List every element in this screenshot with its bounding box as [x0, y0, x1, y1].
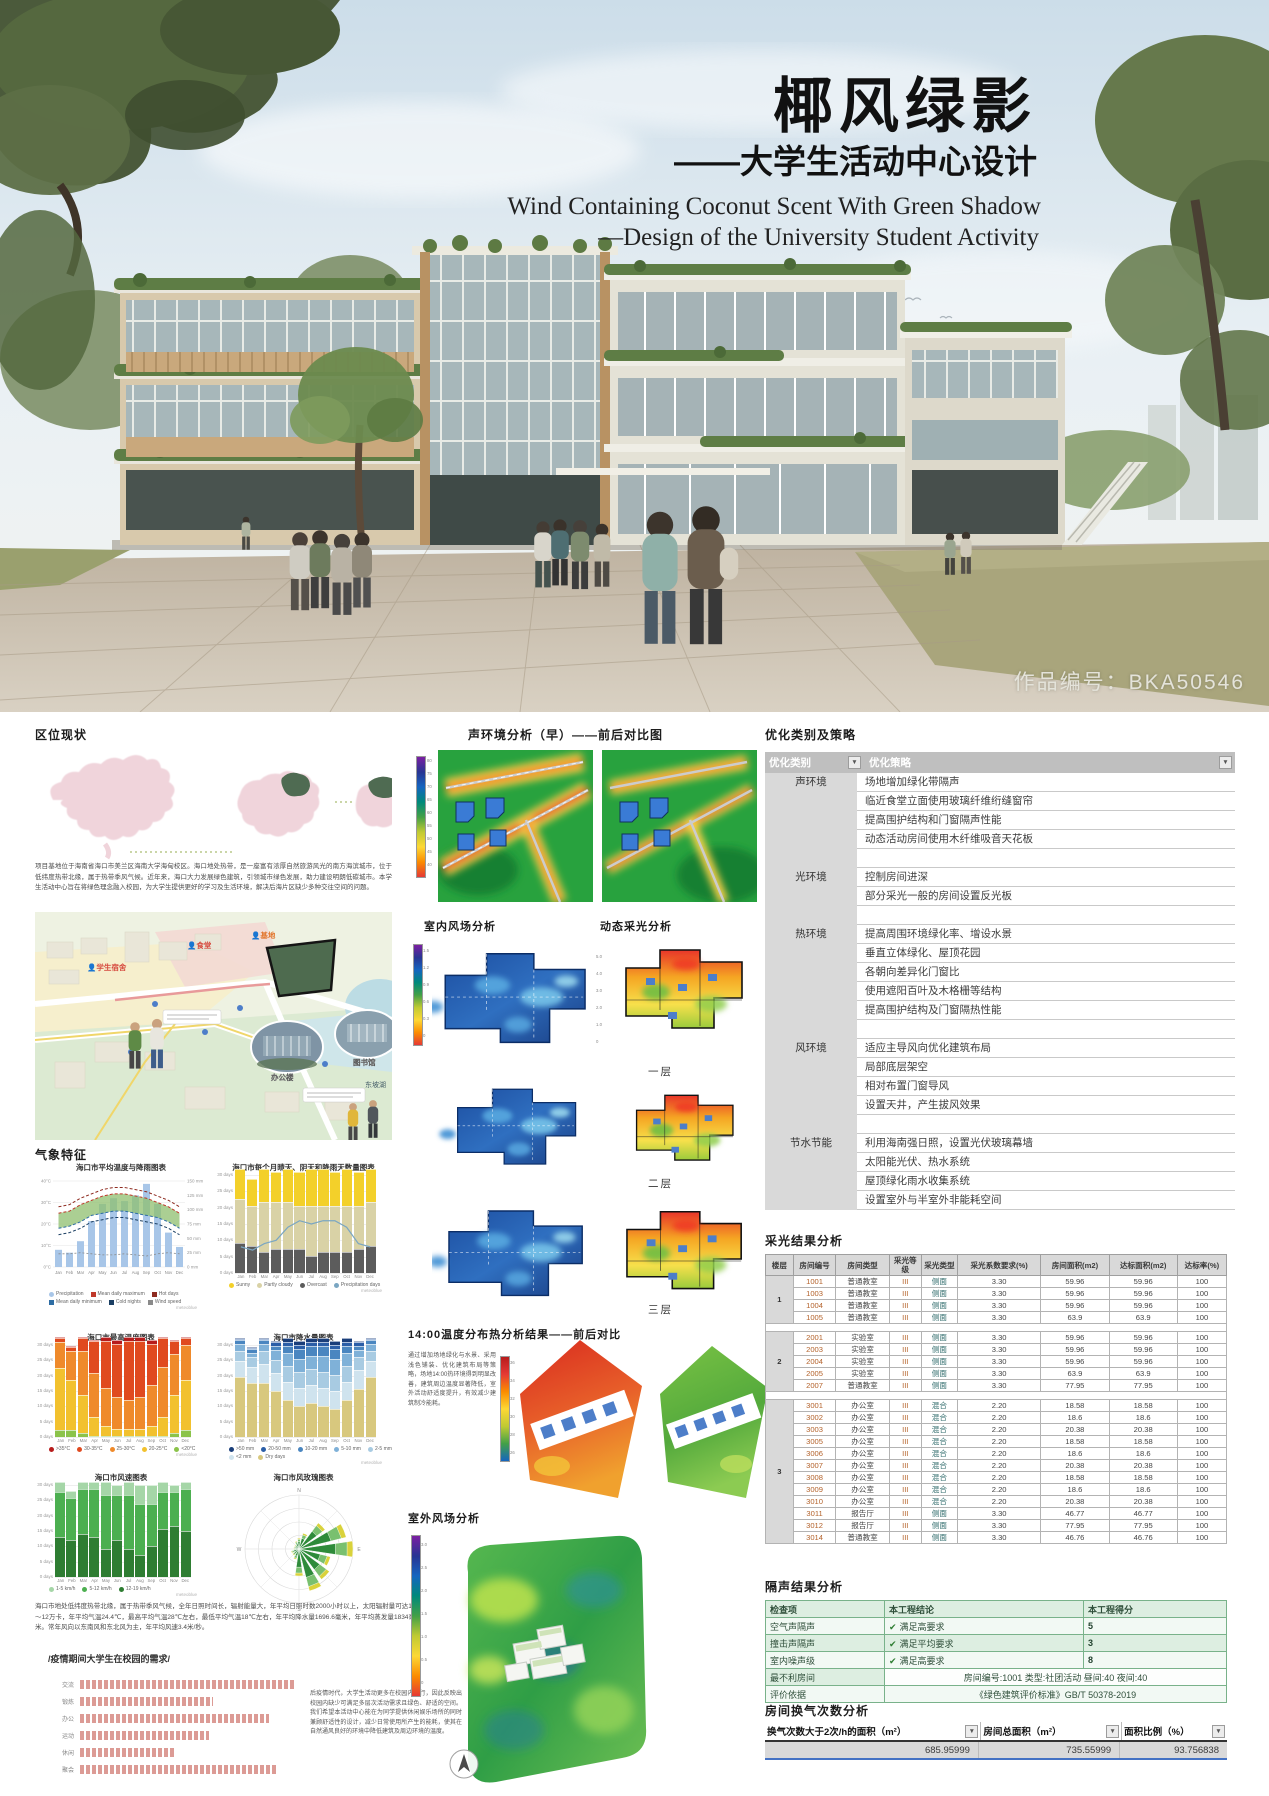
bar-segment	[294, 1388, 304, 1407]
x-tick-label: Nov	[353, 1438, 365, 1443]
bar-column	[78, 1337, 88, 1437]
bar-segment	[181, 1531, 191, 1577]
x-tick-label: Jul	[306, 1274, 318, 1279]
daylight-cell: 18.6	[1041, 1448, 1109, 1460]
strategy-item-cell: 提高周围环境绿化率、增设水景	[857, 925, 1235, 944]
bar-segment	[112, 1429, 122, 1436]
daylight-cell: 59.96	[1041, 1300, 1109, 1312]
strategy-item-cell: 提高围护结构和门窗隔声性能	[857, 811, 1235, 830]
scale-tick-label: 75	[427, 767, 432, 780]
daylight-cell: 1004	[793, 1300, 836, 1312]
daylight-cell: 59.96	[1109, 1288, 1177, 1300]
location-maps	[35, 748, 392, 860]
legend-entry: 25-30°C	[110, 1446, 135, 1452]
needs-bar-row: 办公	[48, 1710, 300, 1727]
daylight-cell: 77.95	[1109, 1380, 1177, 1392]
daylight-cell: 混合	[921, 1448, 957, 1460]
bar-segment	[124, 1341, 134, 1400]
legend-swatch	[109, 1300, 114, 1305]
bar-segment	[112, 1540, 122, 1577]
svg-text:30°C: 30°C	[41, 1200, 52, 1205]
indoor-wind-plan-floor-1	[432, 938, 617, 1066]
x-tick-label: Feb	[66, 1438, 77, 1443]
sound-worst-row: 最不利房间房间编号:1001 类型:社团活动 昼间:40 夜间:40	[766, 1669, 1227, 1686]
daylight-cell: 18.58	[1041, 1472, 1109, 1484]
daylight-cell: 2.20	[958, 1472, 1041, 1484]
filter-dropdown-icon[interactable]: ▼	[848, 756, 861, 769]
daylight-cell: 46.77	[1109, 1508, 1177, 1520]
chart-sky-days: 海口市每个月晴天、阴天和降雨天数量图表30 days25 days20 days…	[215, 1162, 392, 1293]
bar-segment	[135, 1555, 145, 1577]
daylight-cell: III	[889, 1496, 921, 1508]
bar-column	[55, 1482, 65, 1577]
sound-score-cell: 3	[1084, 1635, 1227, 1652]
bar-column	[66, 1346, 76, 1437]
daylight-cell: 2004	[793, 1356, 836, 1368]
needs-category-label: 聚会	[48, 1765, 74, 1774]
chart-x-axis: JanFebMarAprMayJunJulAugSepOctNovDec	[235, 1274, 376, 1279]
daylight-cell: 100	[1177, 1436, 1226, 1448]
daylight-data-row: 2004实验室III侧面3.3059.9659.96100	[766, 1356, 1227, 1368]
daylight-cell: III	[889, 1520, 921, 1532]
bar-segment	[112, 1436, 122, 1437]
svg-text:Jun: Jun	[110, 1270, 117, 1275]
daylight-cell: 3007	[793, 1460, 836, 1472]
filter-dropdown-icon[interactable]: ▼	[1212, 1725, 1225, 1738]
svg-text:100 mm: 100 mm	[187, 1207, 203, 1212]
daylight-cell: 100	[1177, 1448, 1226, 1460]
chart-temp-rain: 海口市平均温度与降雨图表40°C30°C20°C10°C0°C150 mm125…	[35, 1162, 207, 1310]
axis-tick-label: 10 days	[215, 1237, 233, 1242]
x-tick-label: May	[282, 1274, 294, 1279]
daylight-cell: 3009	[793, 1484, 836, 1496]
daylight-spacer-row	[766, 1392, 1227, 1400]
axis-tick-label: 5 days	[215, 1419, 233, 1424]
x-tick-label: Oct	[157, 1578, 168, 1583]
strategy-item-cell: 垂直立体绿化、屋顶花园	[857, 944, 1235, 963]
needs-bar-row: 休闲	[48, 1744, 300, 1761]
sound-data-row: 空气声隔声✔满足高要求5	[766, 1618, 1227, 1635]
daylight-cell: 办公室	[836, 1484, 889, 1496]
bar-segment	[135, 1397, 145, 1429]
daylight-cell: 3002	[793, 1412, 836, 1424]
daylight-cell: 办公室	[836, 1424, 889, 1436]
daylight-cell: 59.96	[1041, 1276, 1109, 1288]
daylight-cell: 2.20	[958, 1460, 1041, 1472]
temp-scale	[500, 1356, 510, 1462]
x-tick-label: Jan	[235, 1274, 247, 1279]
section-title-acoustic: 声环境分析（早）——前后对比图	[468, 726, 663, 743]
bar-segment	[354, 1389, 364, 1437]
daylight-cell: 18.6	[1109, 1484, 1177, 1496]
outdoor-wind-map	[434, 1530, 649, 1790]
daylight-cell: 18.6	[1041, 1484, 1109, 1496]
daylight-cell: 混合	[921, 1496, 957, 1508]
section-title-outdoor-wind: 室外风场分析	[408, 1510, 480, 1526]
indoor-wind-scale	[413, 944, 423, 1046]
daylight-cell: 侧面	[921, 1380, 957, 1392]
sound-header-cell: 本工程得分	[1084, 1601, 1227, 1618]
strategy-item-cell	[857, 849, 1235, 868]
temp-paragraph: 通过增加场地绿化与水景、采用浅色铺装、优化建筑布局等策略，场地14:00热环境得…	[408, 1352, 496, 1409]
svg-text:0 mm: 0 mm	[187, 1265, 199, 1270]
daylight-spacer-row	[766, 1324, 1227, 1332]
legend-entry: Dry days	[258, 1454, 285, 1460]
chart-gridline	[55, 1577, 191, 1578]
chart-title: 海口市风玫瑰图表	[215, 1472, 392, 1483]
temp-map-after	[658, 1344, 770, 1502]
bar-segment	[342, 1400, 352, 1437]
daylight-cell: 20.38	[1109, 1496, 1177, 1508]
x-tick-label: Oct	[341, 1274, 353, 1279]
sound-header-row: 检查项本工程结论本工程得分	[766, 1601, 1227, 1618]
windrose-canvas: NESW	[215, 1485, 383, 1613]
strategy-row: 局部底层架空	[765, 1058, 1235, 1077]
strategy-category-cell	[765, 1172, 857, 1191]
work-number: 作品编号：BKA50546	[1014, 666, 1245, 696]
ach-value-cell: 93.756838	[1119, 1742, 1227, 1758]
daylight-cell: III	[889, 1448, 921, 1460]
filter-dropdown-icon[interactable]: ▼	[965, 1725, 978, 1738]
bar-segment	[112, 1344, 122, 1397]
temp-map-before	[518, 1338, 646, 1503]
strategy-item-cell	[857, 1115, 1235, 1134]
filter-dropdown-icon[interactable]: ▼	[1219, 756, 1232, 769]
bar-column	[354, 1341, 364, 1437]
bar-segment	[124, 1400, 134, 1429]
legend-swatch	[49, 1300, 54, 1305]
bar-segment	[306, 1369, 316, 1385]
daylight-cell: 59.96	[1041, 1344, 1109, 1356]
daylight-data-row: 3014普通教室III侧面3.3046.7646.76100	[766, 1532, 1227, 1544]
strategy-row: 提高围护结构及门窗隔热性能	[765, 1001, 1235, 1020]
daylight-cell: 3.30	[958, 1288, 1041, 1300]
axis-tick-label: 5 days	[215, 1254, 233, 1259]
daylight-cell: III	[889, 1332, 921, 1344]
daylight-cell: 100	[1177, 1424, 1226, 1436]
chart-bars	[235, 1345, 376, 1437]
legend-entry: 10-20 mm	[298, 1446, 328, 1452]
legend-entry: Hot days	[152, 1291, 179, 1297]
bar-segment	[101, 1388, 111, 1426]
axis-tick-label: 0 days	[35, 1574, 53, 1579]
ach-value-cell: 735.55999	[978, 1742, 1119, 1758]
daylight-data-row: 3012报告厅III侧面3.3077.9577.95100	[766, 1520, 1227, 1532]
legend-entry: <2 mm	[229, 1454, 251, 1460]
x-tick-label: Sep	[329, 1274, 341, 1279]
daylight-cell: 20.38	[1041, 1496, 1109, 1508]
daylight-cell: 办公室	[836, 1400, 889, 1412]
strategy-row: 热环境提高周围环境绿化率、增设水景	[765, 925, 1235, 944]
daylight-cell: 100	[1177, 1532, 1226, 1544]
sound-score-cell: 8	[1084, 1652, 1227, 1669]
bar-column	[112, 1485, 122, 1577]
strategy-category-cell	[765, 1115, 857, 1134]
strategy-category-cell	[765, 1077, 857, 1096]
chart-x-axis: JanFebMarAprMayJunJulAugSepOctNovDec	[235, 1438, 376, 1443]
bar-segment	[135, 1504, 145, 1555]
legend-swatch	[82, 1587, 87, 1592]
bar-column	[170, 1340, 180, 1437]
bar-column	[294, 1341, 304, 1437]
bar-segment	[124, 1436, 134, 1437]
daylight-data-row: 2005实验室III侧面3.3063.963.9100	[766, 1368, 1227, 1380]
daylight-cell: 3.30	[958, 1532, 1041, 1544]
bar-segment	[78, 1489, 88, 1535]
section-title-daylight: 动态采光分析	[600, 918, 672, 934]
daylight-plan-floor-2	[616, 1082, 761, 1190]
chart-wind-rose: 海口市风玫瑰图表NESW	[215, 1472, 392, 1618]
bar-segment	[135, 1485, 145, 1504]
daylight-data-row: 33001办公室III混合2.2018.5818.58100	[766, 1400, 1227, 1412]
bar-segment	[66, 1498, 76, 1541]
bar-segment	[158, 1492, 168, 1529]
bar-segment	[101, 1341, 111, 1388]
scale-tick-label: 0	[421, 1671, 427, 1694]
chart-plot: 30 days25 days20 days15 days10 days5 day…	[235, 1175, 376, 1273]
poster-subtitle: ——大学生活动中心设计	[674, 135, 1037, 183]
svg-text:Dec: Dec	[176, 1270, 183, 1275]
daylight-cell: 混合	[921, 1484, 957, 1496]
x-tick-label: Feb	[247, 1438, 259, 1443]
x-tick-label: Feb	[247, 1274, 259, 1279]
bar-segment	[294, 1359, 304, 1372]
x-tick-label: Jun	[112, 1438, 123, 1443]
scale-tick-label: 80	[427, 754, 432, 767]
daylight-cell: 2.20	[958, 1424, 1041, 1436]
sound-worst-value: 房间编号:1001 类型:社团活动 昼间:40 夜间:40	[885, 1669, 1227, 1686]
daylight-cell: 1001	[793, 1276, 836, 1288]
chart-attribution: meteoblue	[215, 1288, 382, 1293]
sound-item-cell: 评价依据	[766, 1686, 885, 1703]
strategy-row: 使用遮阳百叶及木格栅等结构	[765, 982, 1235, 1001]
daylight-cell: 59.96	[1041, 1288, 1109, 1300]
axis-tick-label: 25 days	[35, 1357, 53, 1362]
bar-segment	[342, 1346, 352, 1353]
chart-precip: 海口市降水量图表30 days25 days20 days15 days10 d…	[215, 1332, 392, 1465]
site-label-dorm: 👤学生宿舍	[87, 962, 127, 972]
bar-segment	[283, 1382, 293, 1401]
floor-cell: 3	[766, 1400, 794, 1544]
daylight-cell: 100	[1177, 1412, 1226, 1424]
daylight-plan-floor-3	[616, 1196, 761, 1324]
bar-segment	[235, 1377, 245, 1437]
sound-result-table: 检查项本工程结论本工程得分空气声隔声✔满足高要求5撞击声隔声✔满足平均要求3室内…	[765, 1600, 1227, 1703]
axis-tick-label: 20 days	[215, 1205, 233, 1210]
daylight-cell: 混合	[921, 1400, 957, 1412]
poster-title: 椰风绿影	[773, 58, 1037, 145]
bar-segment	[271, 1360, 281, 1373]
svg-text:150 mm: 150 mm	[187, 1179, 203, 1184]
x-tick-label: Apr	[89, 1438, 100, 1443]
bar-column	[112, 1340, 122, 1437]
daylight-cell: 侧面	[921, 1312, 957, 1324]
daylight-data-row: 2003实验室III侧面3.3059.9659.96100	[766, 1344, 1227, 1356]
daylight-data-row: 2007普通教室III侧面3.3077.9577.95100	[766, 1380, 1227, 1392]
x-tick-label: Aug	[317, 1274, 329, 1279]
sound-data-row: 撞击声隔声✔满足平均要求3	[766, 1635, 1227, 1652]
daylight-header-cell: 达标面积(m2)	[1109, 1255, 1177, 1276]
axis-tick-label: 15 days	[215, 1221, 233, 1226]
acoustic-scale	[416, 756, 426, 878]
axis-tick-label: 0 days	[215, 1434, 233, 1439]
strategy-category-cell	[765, 830, 857, 849]
ach-header-cell: 换气次数大于2次/h的面积（m²）▼	[765, 1722, 980, 1740]
daylight-cell: 18.58	[1109, 1436, 1177, 1448]
check-icon: ✔	[889, 1622, 897, 1632]
chart-gridline	[55, 1437, 191, 1438]
legend-swatch	[119, 1587, 124, 1592]
bar-column	[66, 1491, 76, 1577]
ach-header-label: 换气次数大于2次/h的面积（m²）	[767, 1724, 962, 1738]
chart-attribution: meteoblue	[215, 1460, 382, 1465]
daylight-cell: III	[889, 1276, 921, 1288]
daylight-spacer-cell	[766, 1392, 1227, 1400]
daylight-cell: 3.30	[958, 1276, 1041, 1288]
daylight-cell: 3.30	[958, 1508, 1041, 1520]
svg-text:Oct: Oct	[154, 1270, 161, 1275]
legend-entry: 5-10 mm	[334, 1446, 361, 1452]
scale-tick-label: 0.6	[423, 993, 429, 1010]
bar-segment	[170, 1492, 180, 1526]
needs-bar	[80, 1748, 175, 1757]
strategy-category-cell	[765, 1001, 857, 1020]
poster-title-en-1: Wind Containing Coconut Scent With Green…	[507, 193, 1041, 221]
scale-tick-label: 2.0	[421, 1579, 427, 1602]
daylight-cell: 侧面	[921, 1288, 957, 1300]
daylight-cell: 59.96	[1109, 1344, 1177, 1356]
daylight-cell: 100	[1177, 1508, 1226, 1520]
bar-segment	[101, 1436, 111, 1437]
strategy-item-cell: 提高围护结构及门窗隔热性能	[857, 1001, 1235, 1020]
indoor-wind-scale-ticks: 1.51.20.90.60.30	[423, 942, 429, 1044]
strategy-row: 相对布置门窗导风	[765, 1077, 1235, 1096]
scale-tick-label: 34	[510, 1372, 515, 1390]
daylight-data-row: 1005普通教室III侧面3.3063.963.9100	[766, 1312, 1227, 1324]
daylight-cell: 侧面	[921, 1276, 957, 1288]
x-tick-label: Feb	[66, 1578, 77, 1583]
sound-basis-row: 评价依据《绿色建筑评价标准》GB/T 50378-2019	[766, 1686, 1227, 1703]
daylight-cell: 侧面	[921, 1532, 957, 1544]
strategy-item-cell: 部分采光一般的房间设置反光板	[857, 887, 1235, 906]
sound-item-cell: 最不利房间	[766, 1669, 885, 1686]
strategy-category-cell	[765, 963, 857, 982]
bar-segment	[78, 1395, 88, 1433]
scale-tick-label: 0.5	[421, 1648, 427, 1671]
site-label-lake: 东坡湖	[365, 1080, 386, 1089]
daylight-data-row: 3005办公室III混合2.2018.5818.58100	[766, 1436, 1227, 1448]
filter-dropdown-icon[interactable]: ▼	[1106, 1725, 1119, 1738]
daylight-cell: 侧面	[921, 1520, 957, 1532]
daylight-cell: 3008	[793, 1472, 836, 1484]
scale-tick-label: 32	[510, 1390, 515, 1408]
site-label-site: 👤基地	[251, 930, 276, 940]
legend-swatch	[258, 1455, 263, 1460]
bar-column	[89, 1340, 99, 1437]
daylight-cell: 3011	[793, 1508, 836, 1520]
daylight-cell: 办公室	[836, 1472, 889, 1484]
daylight-cell: 59.96	[1109, 1276, 1177, 1288]
bar-segment	[354, 1357, 364, 1370]
needs-category-label: 休闲	[48, 1748, 74, 1757]
svg-text:Feb: Feb	[66, 1270, 74, 1275]
svg-text:Nov: Nov	[165, 1270, 173, 1275]
daylight-cell: 100	[1177, 1400, 1226, 1412]
axis-tick-label: 30 days	[215, 1342, 233, 1347]
floor-label-2: 二层	[648, 1176, 673, 1191]
axis-tick-label: 30 days	[35, 1482, 53, 1487]
daylight-cell: 100	[1177, 1496, 1226, 1508]
strategy-row: 临近食堂立面使用玻璃纤维绗缝窗帘	[765, 792, 1235, 811]
daylight-cell: 3.30	[958, 1368, 1041, 1380]
daylight-cell: 3003	[793, 1424, 836, 1436]
strategy-item-cell: 太阳能光伏、热水系统	[857, 1153, 1235, 1172]
svg-text:Apr: Apr	[88, 1270, 95, 1275]
needs-bar	[80, 1697, 213, 1706]
legend-entry: 1-5 km/h	[49, 1586, 75, 1592]
bar-column	[135, 1337, 145, 1437]
daylight-header-cell: 房间编号	[793, 1255, 836, 1276]
strategy-row: 设置室外与半室外非能耗空间	[765, 1191, 1235, 1210]
scale-tick-label: 1.2	[423, 959, 429, 976]
daylight-cell: 1005	[793, 1312, 836, 1324]
strategy-item-cell: 设置天井，产生拔风效果	[857, 1096, 1235, 1115]
needs-category-label: 锻炼	[48, 1697, 74, 1706]
bar-segment	[55, 1430, 65, 1437]
bar-segment	[112, 1397, 122, 1429]
sound-item-cell: 空气声隔声	[766, 1618, 885, 1635]
bar-segment	[89, 1436, 99, 1437]
daylight-cell: 100	[1177, 1520, 1226, 1532]
bar-segment	[318, 1346, 328, 1356]
legend-swatch	[229, 1283, 234, 1288]
axis-tick-label: 25 days	[215, 1357, 233, 1362]
x-tick-label: Mar	[78, 1578, 89, 1583]
floor-cell: 1	[766, 1276, 794, 1324]
bar-segment	[366, 1361, 376, 1377]
strategy-category-cell	[765, 887, 857, 906]
axis-tick-label: 10 days	[215, 1403, 233, 1408]
x-tick-label: Dec	[364, 1274, 376, 1279]
daylight-data-row: 22001实验室III侧面3.3059.9659.96100	[766, 1332, 1227, 1344]
daylight-cell: III	[889, 1356, 921, 1368]
chart-line-overlay	[235, 1175, 376, 1273]
daylight-cell: 2.20	[958, 1400, 1041, 1412]
daylight-cell: 侧面	[921, 1300, 957, 1312]
hero-illustration	[0, 0, 1269, 712]
indoor-wind-plan-floor-2	[432, 1076, 617, 1184]
chart-needs: 交流锻炼办公运动休闲聚会	[48, 1676, 300, 1778]
daylight-cell: 63.9	[1109, 1312, 1177, 1324]
bar-segment	[101, 1495, 111, 1549]
daylight-cell: 3010	[793, 1496, 836, 1508]
outdoor-wind-scale-ticks: 3.02.52.01.51.00.50	[421, 1533, 427, 1694]
daylight-data-row: 3002办公室III混合2.2018.618.6100	[766, 1412, 1227, 1424]
strategy-row: 太阳能光伏、热水系统	[765, 1153, 1235, 1172]
strategy-category-cell	[765, 1153, 857, 1172]
daylight-cell: 63.9	[1109, 1368, 1177, 1380]
section-title-indoor-wind: 室内风场分析	[424, 918, 496, 934]
daylight-header-cell: 采光等级	[889, 1255, 921, 1276]
strategy-item-cell: 局部底层架空	[857, 1058, 1235, 1077]
daylight-cell: 18.6	[1109, 1412, 1177, 1424]
daylight-cell: 2007	[793, 1380, 836, 1392]
legend-swatch	[334, 1447, 339, 1452]
bar-segment	[354, 1350, 364, 1357]
legend-entry: Mean daily minimum	[49, 1299, 102, 1305]
bar-segment	[181, 1430, 191, 1437]
daylight-cell: III	[889, 1412, 921, 1424]
